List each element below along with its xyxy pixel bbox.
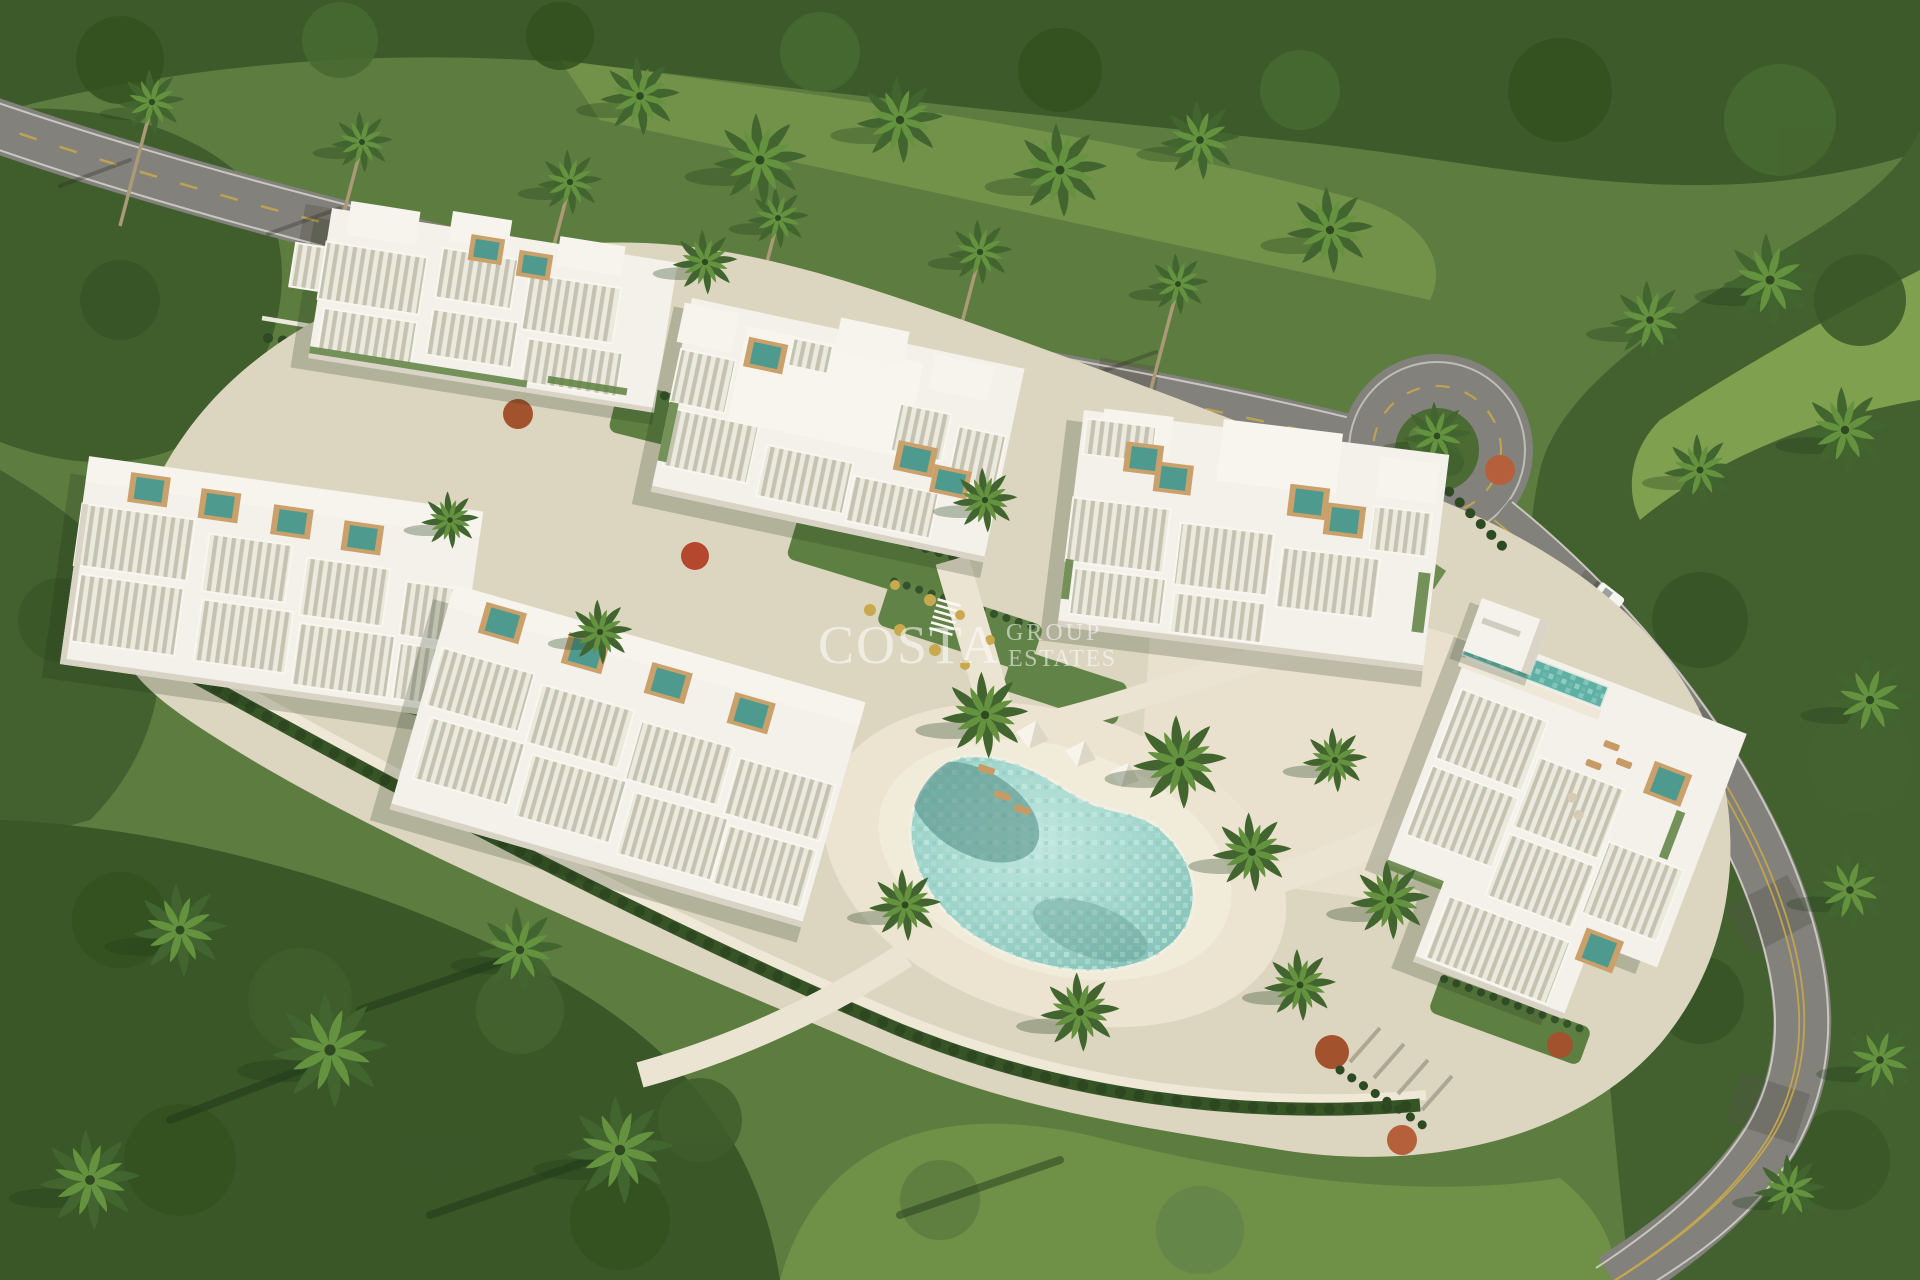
watermark-estates: ESTATES xyxy=(1008,646,1117,672)
aerial-development-render: COSTA GROUP ESTATES xyxy=(0,0,1920,1280)
watermark: COSTA GROUP ESTATES xyxy=(818,615,1117,675)
watermark-group: GROUP xyxy=(1006,620,1102,646)
watermark-brand: COSTA xyxy=(818,615,1001,675)
